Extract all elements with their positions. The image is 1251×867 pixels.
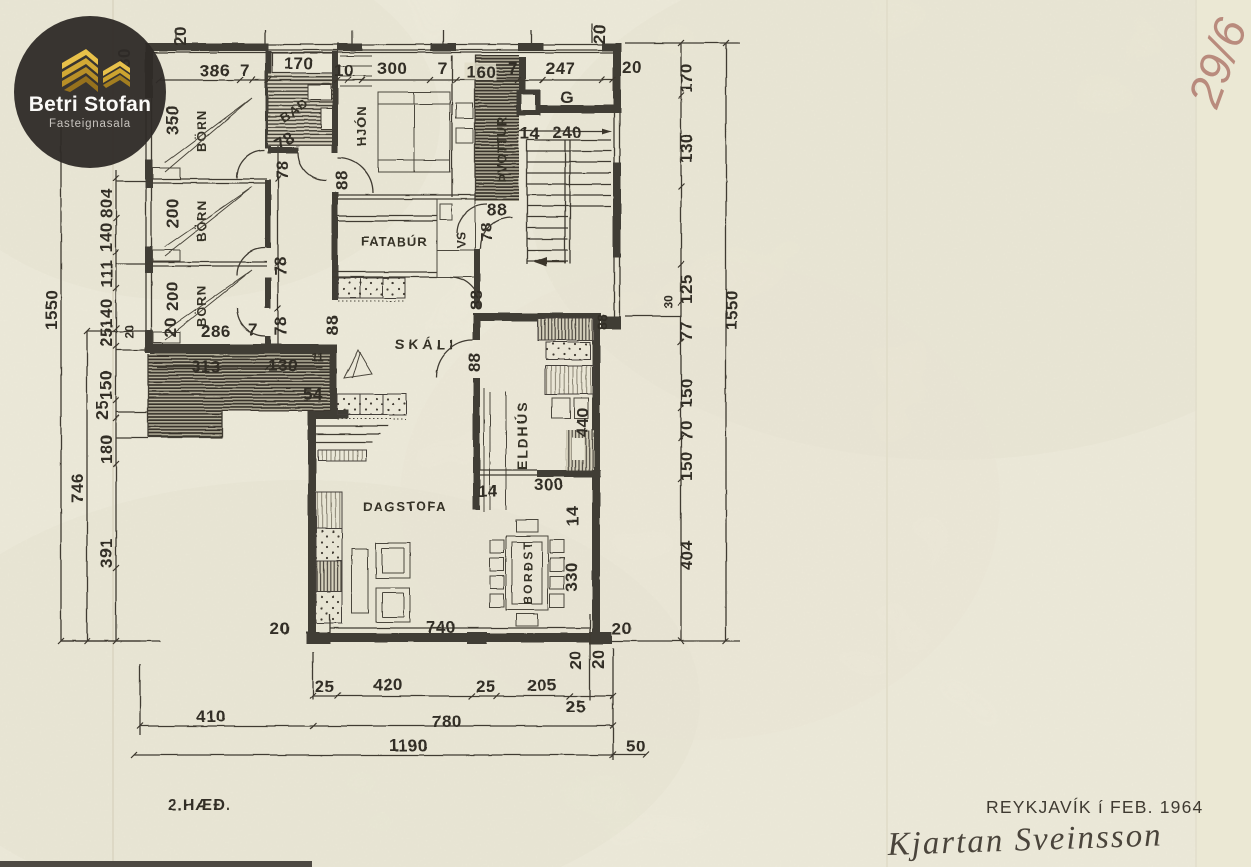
svg-text:88: 88 — [332, 170, 351, 190]
svg-text:20: 20 — [270, 619, 290, 638]
svg-text:2.HÆÐ.: 2.HÆÐ. — [168, 797, 231, 814]
svg-text:150: 150 — [97, 370, 116, 400]
svg-text:1190: 1190 — [389, 736, 428, 755]
svg-text:20: 20 — [589, 649, 608, 669]
svg-text:78: 78 — [271, 316, 290, 336]
svg-text:140: 140 — [97, 298, 116, 328]
svg-text:HJÓN: HJÓN — [354, 106, 369, 146]
svg-text:78: 78 — [271, 256, 290, 276]
svg-text:804: 804 — [97, 188, 116, 218]
svg-text:330: 330 — [562, 562, 581, 592]
svg-text:VS: VS — [454, 232, 468, 248]
svg-text:20: 20 — [171, 26, 190, 46]
svg-text:313: 313 — [191, 357, 221, 376]
svg-text:25: 25 — [476, 677, 496, 696]
svg-text:88: 88 — [323, 315, 342, 335]
svg-text:78: 78 — [273, 160, 292, 180]
svg-text:BÖRN: BÖRN — [194, 200, 209, 242]
svg-text:247: 247 — [546, 59, 576, 78]
svg-text:180: 180 — [97, 434, 116, 464]
svg-text:14: 14 — [478, 482, 498, 501]
svg-text:DAGSTOFA: DAGSTOFA — [363, 499, 447, 514]
svg-text:300: 300 — [377, 59, 407, 78]
svg-text:ELDHÚS: ELDHÚS — [513, 400, 530, 470]
svg-text:410: 410 — [196, 707, 226, 726]
svg-text:140: 140 — [97, 222, 116, 252]
svg-text:30: 30 — [662, 294, 676, 308]
svg-text:88: 88 — [487, 200, 507, 219]
svg-text:20: 20 — [566, 650, 585, 670]
svg-text:14: 14 — [563, 506, 582, 526]
svg-text:ÞVOTTUR: ÞVOTTUR — [494, 116, 509, 182]
svg-text:740: 740 — [426, 618, 456, 637]
svg-text:200: 200 — [163, 198, 182, 228]
svg-text:70: 70 — [677, 420, 696, 440]
svg-text:54: 54 — [303, 385, 323, 404]
svg-text:350: 350 — [163, 105, 182, 135]
svg-text:391: 391 — [97, 538, 116, 568]
svg-text:20: 20 — [590, 24, 609, 44]
svg-text:50: 50 — [626, 737, 646, 756]
svg-text:1550: 1550 — [722, 290, 741, 330]
svg-text:170: 170 — [677, 63, 696, 93]
svg-text:25: 25 — [315, 677, 335, 696]
svg-text:G: G — [560, 88, 574, 107]
svg-text:386: 386 — [200, 61, 230, 80]
svg-text:7: 7 — [438, 59, 448, 78]
svg-text:78: 78 — [477, 222, 496, 242]
svg-text:20: 20 — [622, 58, 642, 77]
svg-text:20: 20 — [161, 317, 180, 337]
svg-text:Fasteignasala: Fasteignasala — [49, 118, 131, 130]
svg-text:150: 150 — [677, 451, 696, 481]
svg-text:130: 130 — [677, 133, 696, 163]
svg-text:130: 130 — [268, 356, 298, 375]
svg-text:88: 88 — [594, 313, 610, 330]
svg-text:REYKJAVÍK í FEB. 1964: REYKJAVÍK í FEB. 1964 — [986, 797, 1203, 817]
svg-text:111: 111 — [97, 260, 116, 288]
svg-text:11: 11 — [311, 350, 324, 364]
svg-text:25: 25 — [566, 697, 586, 716]
svg-text:25: 25 — [97, 327, 116, 347]
svg-text:170: 170 — [284, 54, 314, 73]
svg-text:BORÐST: BORÐST — [521, 539, 535, 605]
svg-text:125: 125 — [677, 274, 696, 304]
svg-text:404: 404 — [677, 540, 696, 570]
svg-text:240: 240 — [552, 123, 582, 142]
svg-text:286: 286 — [201, 322, 231, 341]
svg-text:77: 77 — [677, 321, 696, 341]
svg-text:205: 205 — [527, 676, 557, 695]
svg-text:150: 150 — [677, 378, 696, 408]
svg-text:746: 746 — [68, 473, 87, 503]
svg-text:7: 7 — [240, 61, 250, 80]
svg-text:440: 440 — [573, 407, 592, 437]
svg-text:88: 88 — [465, 352, 484, 372]
svg-text:10: 10 — [334, 61, 354, 80]
svg-text:7: 7 — [248, 320, 258, 339]
svg-text:FATABÚR: FATABÚR — [361, 234, 428, 249]
svg-text:25: 25 — [93, 400, 112, 420]
svg-text:420: 420 — [373, 675, 403, 694]
svg-text:780: 780 — [432, 712, 462, 731]
svg-text:160: 160 — [466, 63, 496, 82]
svg-text:1550: 1550 — [42, 290, 61, 330]
svg-text:300: 300 — [534, 475, 564, 494]
svg-text:20: 20 — [612, 619, 632, 638]
svg-text:200: 200 — [163, 281, 182, 311]
svg-text:Betri Stofan: Betri Stofan — [29, 93, 152, 116]
svg-text:7: 7 — [508, 59, 518, 78]
